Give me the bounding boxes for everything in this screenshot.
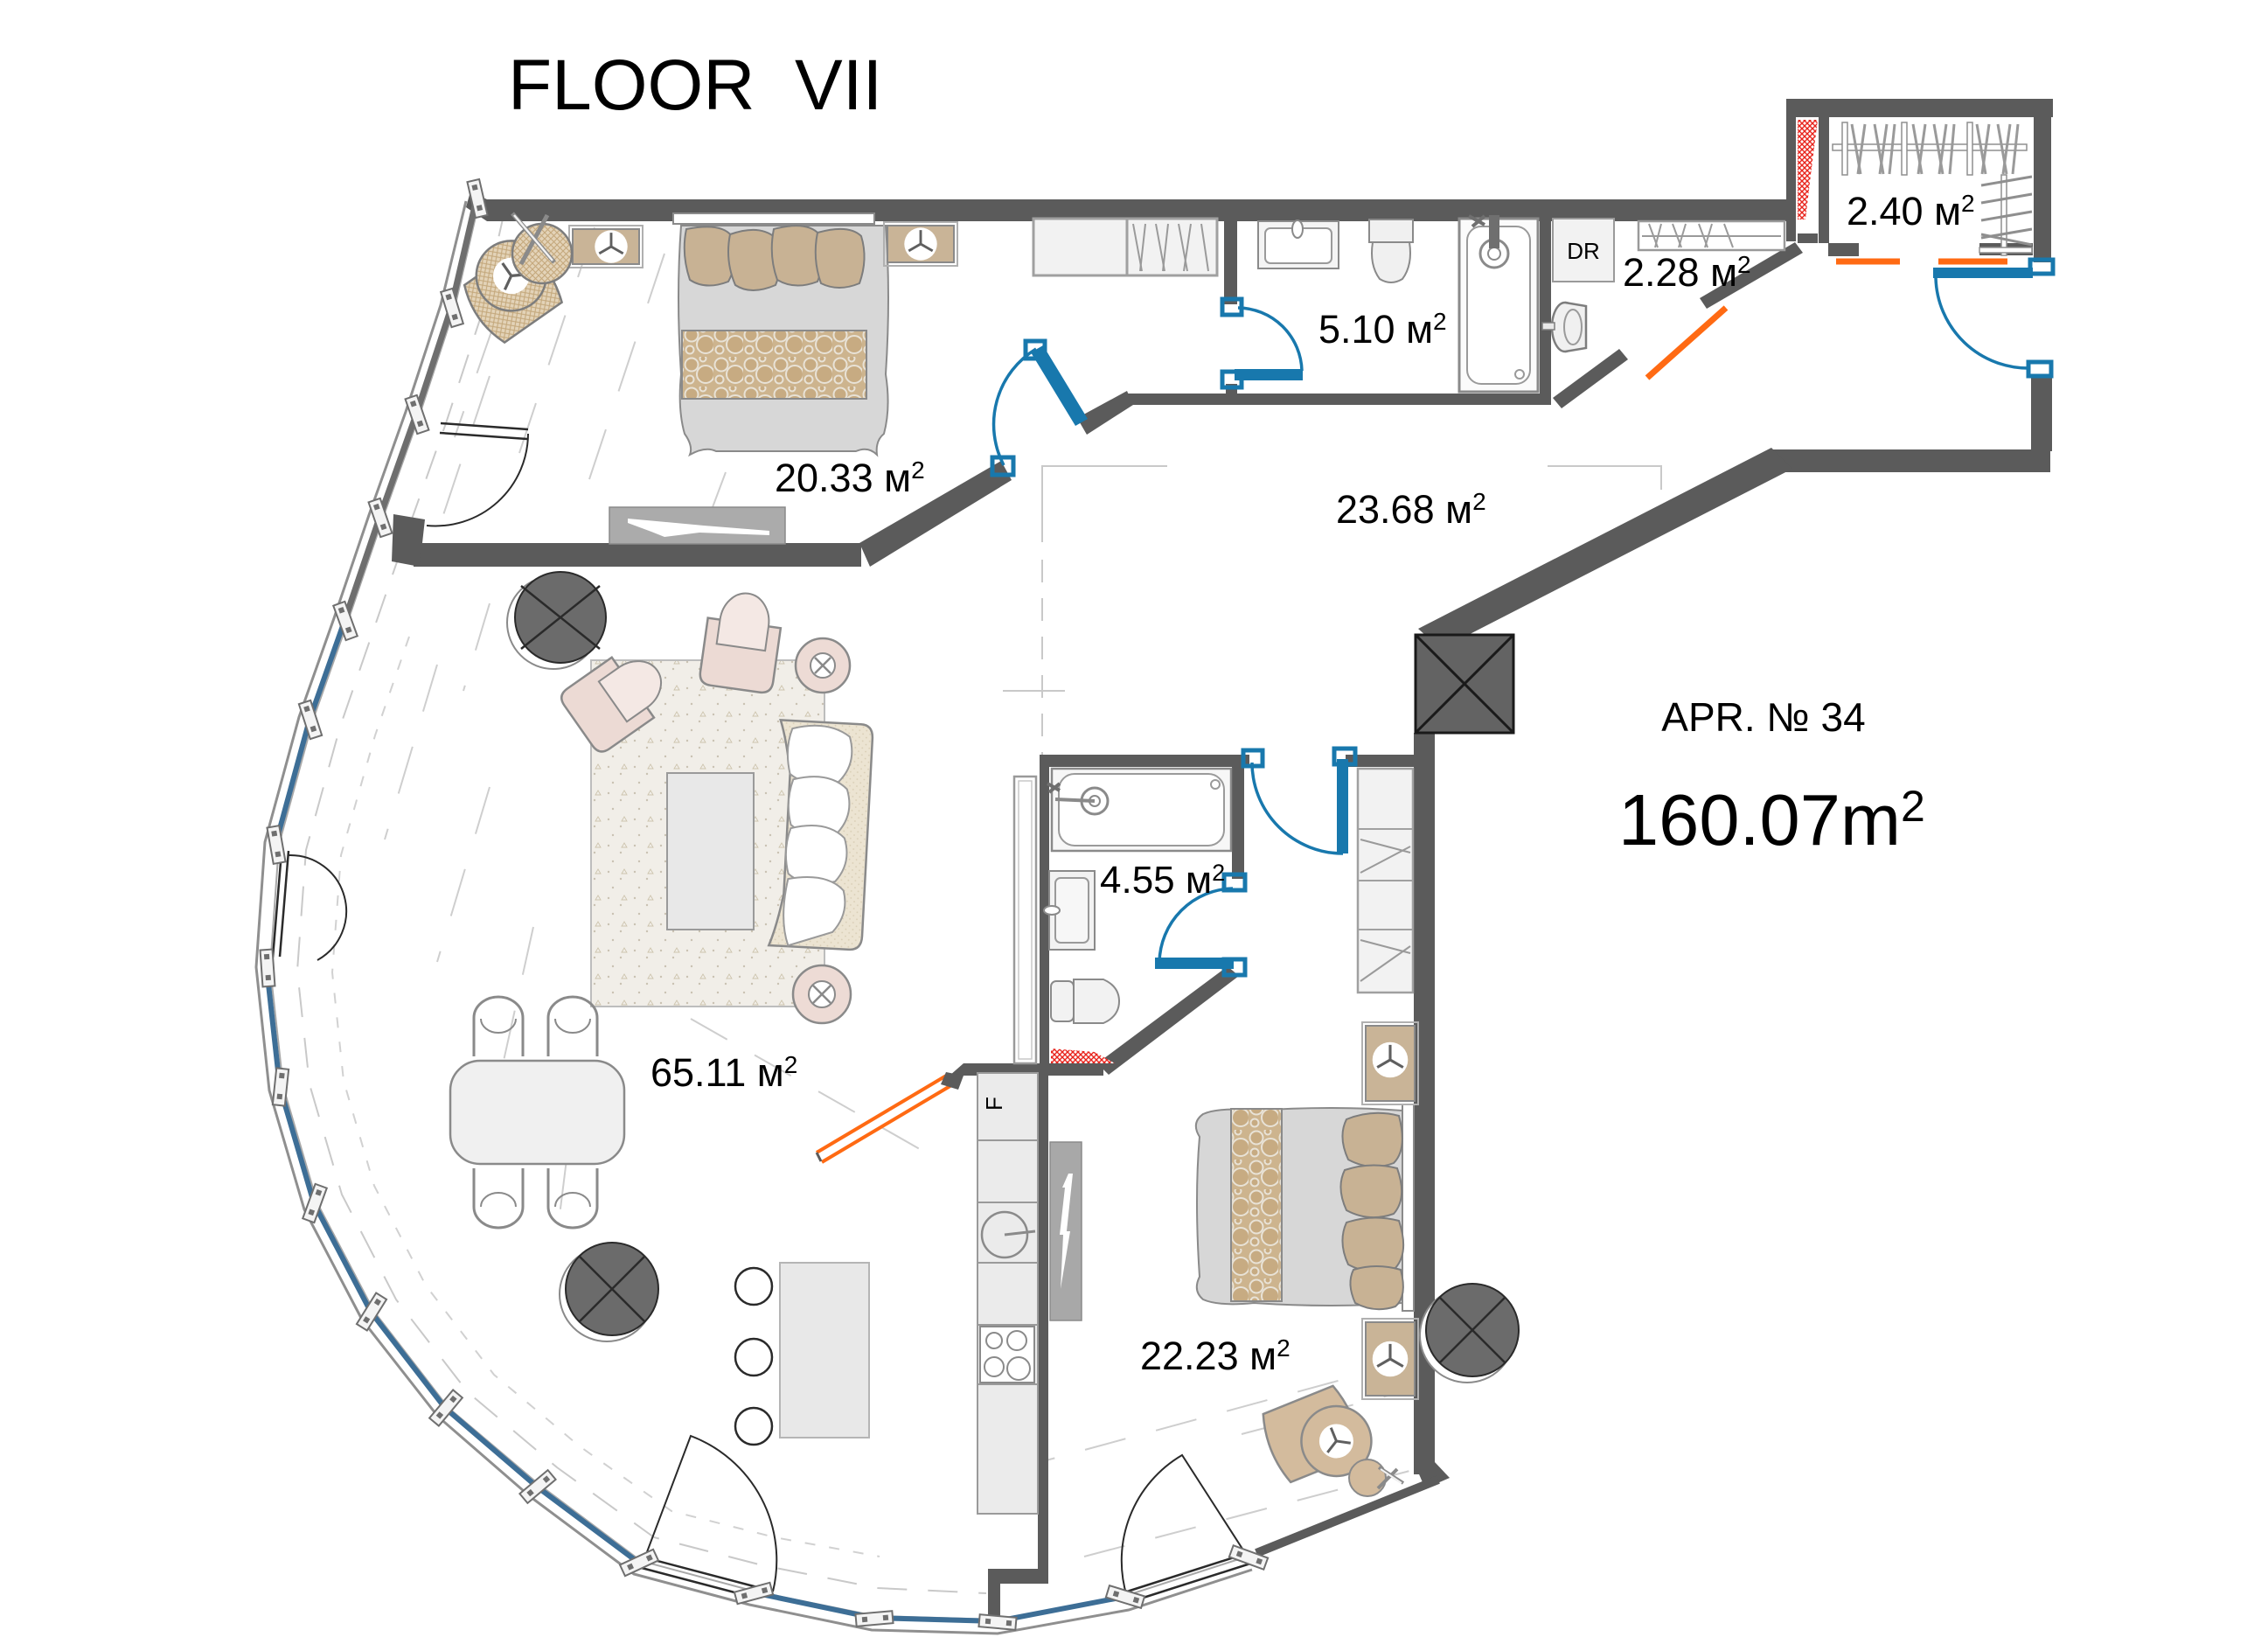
svg-text:2.28 м2: 2.28 м2 [1623,250,1751,295]
svg-text:22.23 м2: 22.23 м2 [1140,1334,1291,1378]
svg-text:4.55 м2: 4.55 м2 [1100,859,1225,902]
svg-text:DR: DR [1567,238,1600,264]
svg-text:65.11 м2: 65.11 м2 [650,1050,797,1095]
svg-text:23.68 м2: 23.68 м2 [1336,487,1486,532]
svg-text:FLOOR VII: FLOOR VII [508,45,882,125]
svg-text:2.40 м2: 2.40 м2 [1847,189,1975,233]
svg-text:160.07m2: 160.07m2 [1618,779,1925,860]
svg-text:F: F [981,1097,1007,1111]
svg-text:APR. № 34: APR. № 34 [1661,694,1865,740]
svg-text:5.10 м2: 5.10 м2 [1318,307,1447,352]
svg-text:20.33 м2: 20.33 м2 [775,456,925,500]
